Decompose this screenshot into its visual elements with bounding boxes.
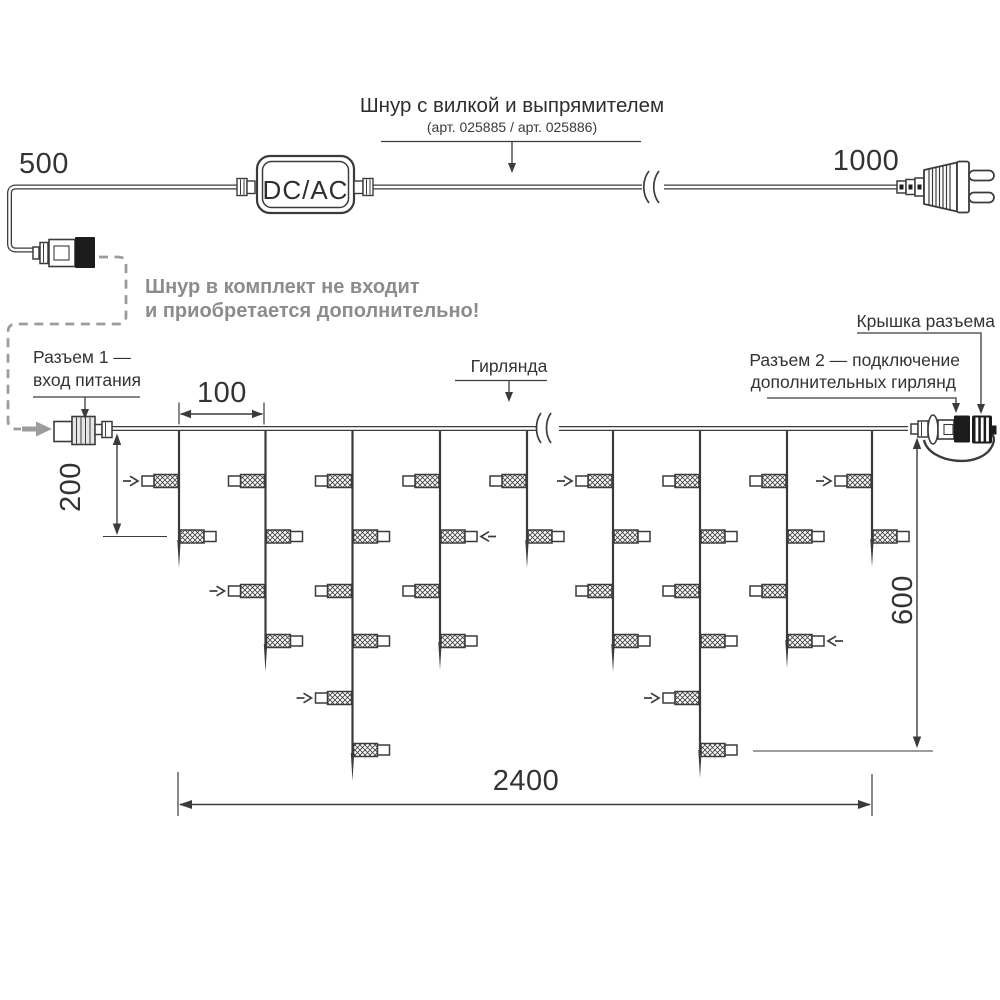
lamp xyxy=(873,530,909,543)
dim-100-label: 100 xyxy=(197,377,247,409)
cord-title-arrowhead xyxy=(508,163,516,173)
power-cord-left-wire xyxy=(10,187,240,250)
lamp xyxy=(701,530,737,543)
garland-drop xyxy=(816,431,909,568)
lamp xyxy=(354,744,390,757)
cord-title-leader xyxy=(381,142,641,165)
lamp xyxy=(354,635,390,648)
garland-drop xyxy=(557,431,650,673)
connector-black-cap xyxy=(75,237,95,268)
not-included-arrow xyxy=(22,422,52,437)
lamp xyxy=(644,692,699,705)
lamp-direction-arrow-icon xyxy=(217,586,225,596)
lamp xyxy=(701,744,737,757)
cord-break-icon xyxy=(644,171,659,203)
connector1-label-line2: вход питания xyxy=(33,370,141,390)
garland-connector-2 xyxy=(911,415,970,444)
lamp xyxy=(614,530,650,543)
lamp xyxy=(701,635,737,648)
lamp-direction-arrow-icon xyxy=(564,476,572,486)
garland-drop xyxy=(490,431,564,569)
lamp xyxy=(788,530,824,543)
garland-drop xyxy=(297,431,390,782)
garland-drops-layer xyxy=(123,431,909,782)
not-included-note-line1: Шнур в комплект не входит xyxy=(145,276,420,298)
lamp-direction-arrow-icon xyxy=(304,693,312,703)
lamp xyxy=(403,475,439,488)
garland-drop xyxy=(644,431,737,779)
lamp xyxy=(267,635,303,648)
lamp-direction-arrow-icon xyxy=(481,532,489,542)
not-included-dashed-leader xyxy=(8,257,126,429)
lamp xyxy=(297,692,352,705)
dim-500-label: 500 xyxy=(19,148,69,180)
diagram-canvas: DC/AC xyxy=(0,0,1000,1000)
connector2-label-line1: Разъем 2 — подключение xyxy=(749,350,960,370)
garland-diagram: DC/AC xyxy=(0,0,1000,1000)
lamp-direction-arrow-icon xyxy=(651,693,659,703)
lamp xyxy=(316,585,352,598)
garland-drop xyxy=(750,431,843,669)
garland-drop xyxy=(210,431,303,673)
lamp xyxy=(316,475,352,488)
garland-drop xyxy=(123,431,216,569)
power-plug xyxy=(897,162,994,213)
dim-1000-label: 1000 xyxy=(833,145,900,177)
lamp-direction-arrow-icon xyxy=(828,636,836,646)
cord-subtitle: (арт. 025885 / арт. 025886) xyxy=(427,119,597,135)
plug-prong-bottom xyxy=(969,193,994,203)
garland-drop xyxy=(403,431,496,671)
not-included-note-line2: и приобретается дополнительно! xyxy=(145,300,479,322)
lamp xyxy=(441,530,496,543)
lamp xyxy=(816,475,871,488)
plug-prong-top xyxy=(969,171,994,181)
lamp xyxy=(403,585,439,598)
garland-label-arrowhead xyxy=(505,392,513,402)
garland-connector-1 xyxy=(54,417,112,445)
lamp-direction-arrow-icon xyxy=(823,476,831,486)
garland-label: Гирлянда xyxy=(471,356,548,376)
lamp xyxy=(663,475,699,488)
lamp xyxy=(750,475,786,488)
dim-600-label: 600 xyxy=(887,575,919,625)
lamp xyxy=(663,585,699,598)
lamp xyxy=(750,585,786,598)
lamp xyxy=(210,585,265,598)
lamp xyxy=(229,475,265,488)
garland-label-leader xyxy=(455,381,547,394)
lamp xyxy=(180,530,216,543)
lamp xyxy=(557,475,612,488)
connector1-label-line1: Разъем 1 — xyxy=(33,347,131,367)
lamp xyxy=(441,635,477,648)
connector1-leader xyxy=(33,397,140,410)
cord-title: Шнур с вилкой и выпрямителем xyxy=(360,94,664,117)
lamp xyxy=(614,635,650,648)
plug-face xyxy=(957,162,969,213)
garland-break-icon xyxy=(537,413,552,443)
converter-label: DC/AC xyxy=(263,175,349,205)
lamp xyxy=(123,475,178,488)
lamp xyxy=(490,475,526,488)
cap-label: Крышка разъема xyxy=(856,311,995,331)
cap-label-arrowhead xyxy=(977,404,985,414)
lamp xyxy=(354,530,390,543)
cord-output-connector xyxy=(33,237,95,268)
connector2-leader xyxy=(767,398,956,404)
lamp-direction-arrow-icon xyxy=(130,476,138,486)
dim-200-label: 200 xyxy=(55,462,87,512)
lamp xyxy=(576,585,612,598)
lamp xyxy=(528,530,564,543)
dim-2400-label: 2400 xyxy=(493,765,560,797)
connector2-label-line2: дополнительных гирлянд xyxy=(751,372,956,392)
lamp xyxy=(788,635,843,648)
connector2-arrowhead xyxy=(952,403,960,413)
lamp xyxy=(267,530,303,543)
